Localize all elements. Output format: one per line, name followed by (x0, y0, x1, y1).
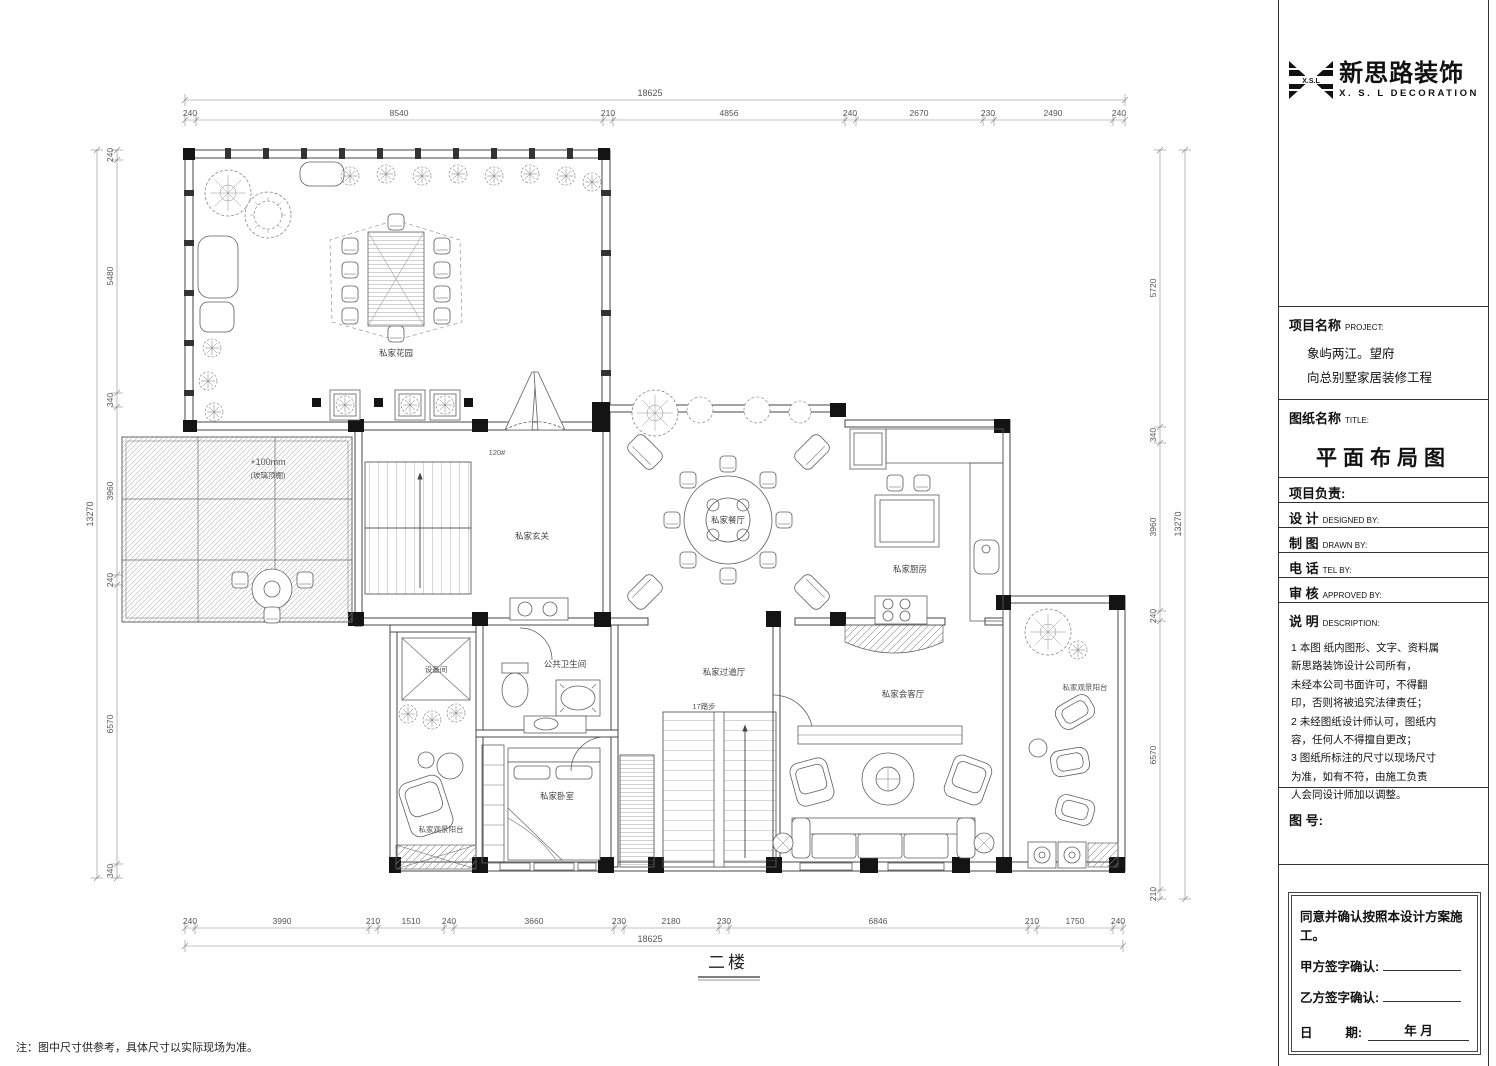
dim-bot-4: 240 (442, 916, 456, 926)
bottom-note: 注：图中尺寸供参考，具体尺寸以实际现场为准。 (16, 1040, 258, 1054)
dim-bottom-overall: 18625 (637, 934, 662, 944)
tel-row: 电 话TEL BY: (1279, 553, 1488, 578)
dim-chain-bottom (182, 922, 1126, 934)
bedroom-area: 私家卧室 (482, 737, 605, 870)
dim-chain-left (111, 147, 123, 881)
dim-bot-0: 240 (183, 916, 197, 926)
dim-bot-12: 240 (1111, 916, 1125, 926)
dim-right-5: 210 (1148, 887, 1158, 901)
dim-top-3: 4856 (720, 108, 739, 118)
dim-left-0: 240 (105, 148, 115, 162)
sheet-name-section: 图纸名称TITLE: 平面布局图 (1279, 400, 1488, 478)
dim-left-3: 3960 (105, 481, 115, 500)
description-section: 说 明DESCRIPTION: 1 本图 纸内图形、文字、资料属 新思路装饰设计… (1279, 603, 1488, 788)
drawing-sheet: 18625 240 8540 210 4856 240 2670 230 249… (0, 0, 1496, 1066)
living-area: 私家会客厅 (773, 689, 994, 870)
dim-top-8: 240 (1112, 108, 1126, 118)
dim-left-4: 240 (105, 573, 115, 587)
project-label: 项目名称 (1289, 318, 1341, 333)
dim-bot-6: 230 (612, 916, 626, 926)
dim-top-4: 240 (843, 108, 857, 118)
floor-title: 二楼 (708, 953, 748, 972)
party-b-label: 乙方签字确认: (1300, 991, 1379, 1005)
dim-left-1: 5480 (105, 266, 115, 285)
figure-number-section: 图 号: (1279, 788, 1488, 865)
signature-section: 同意并确认按照本设计方案施工。 甲方签字确认: 乙方签字确认: 日期: 年 月 (1279, 865, 1488, 1064)
svg-text:X.S.L: X.S.L (1302, 78, 1320, 85)
bathroom-label: 公共卫生间 (544, 659, 587, 669)
floor-plan-drawing: 18625 240 8540 210 4856 240 2670 230 249… (0, 0, 1278, 1066)
stair-mark-label: 120# (489, 448, 507, 457)
approved-by-row: 审 核APPROVED BY: (1279, 578, 1488, 603)
dim-bot-8: 230 (717, 916, 731, 926)
balcony-left-label: 私家观景阳台 (419, 824, 464, 834)
company-logo-section: X.S.L 新思路装饰 X. S. L DECORATION (1279, 0, 1488, 307)
dim-right-0: 5720 (1148, 278, 1158, 297)
party-b-signature-line[interactable] (1383, 990, 1461, 1002)
project-line1: 象屿两江。望府 (1307, 343, 1478, 367)
dim-left-overall: 13270 (85, 501, 95, 526)
dim-top-overall: 18625 (637, 88, 662, 98)
foyer-label: 私家玄关 (515, 531, 550, 541)
xsl-bowtie-logo-icon: X.S.L (1288, 60, 1334, 100)
dim-right-overall: 13270 (1173, 511, 1183, 536)
dining-label: 私家餐厅 (711, 515, 746, 525)
leader-row: 项目负责: (1279, 478, 1488, 503)
dim-right-3: 240 (1148, 609, 1158, 623)
dim-bot-7: 2180 (662, 916, 681, 926)
brand-name-en: X. S. L DECORATION (1339, 88, 1479, 99)
date-row: 日期: 年 月 (1300, 1020, 1469, 1041)
dim-top-1: 8540 (390, 108, 409, 118)
stair-steps-label: 17踏步 (692, 701, 716, 711)
description-notes: 1 本图 纸内图形、文字、资料属 新思路装饰设计公司所有， 未经本公司书面许可，… (1289, 639, 1478, 804)
title-block: X.S.L 新思路装饰 X. S. L DECORATION 项目名称PROJE… (1278, 0, 1489, 1066)
hallway-label: 私家过道厅 (703, 667, 746, 677)
balcony-right-area: 私家观景阳台 (1025, 609, 1118, 868)
living-label: 私家会客厅 (882, 689, 925, 699)
dim-top-5: 2670 (910, 108, 929, 118)
dim-bot-9: 6846 (869, 916, 888, 926)
figure-no-label: 图 号: (1289, 810, 1323, 829)
date-line[interactable]: 年 月 (1368, 1020, 1469, 1041)
dim-bot-5: 3660 (525, 916, 544, 926)
signature-box: 同意并确认按照本设计方案施工。 甲方签字确认: 乙方签字确认: 日期: 年 月 (1291, 895, 1478, 1052)
dim-right-2: 3960 (1148, 517, 1158, 536)
drawn-by-row: 制 图DRAWN BY: (1279, 528, 1488, 553)
agreement-text: 同意并确认按照本设计方案施工。 (1300, 906, 1469, 944)
sheet-label: 图纸名称 (1289, 411, 1341, 426)
dim-bot-2: 210 (366, 916, 380, 926)
garden-label: 私家花园 (379, 348, 413, 358)
dim-top-0: 240 (183, 108, 197, 118)
bathroom-area: 公共卫生间 (502, 628, 600, 733)
project-line2: 向总别墅家居装修工程 (1307, 367, 1478, 391)
brand-name-cn: 新思路装饰 (1339, 61, 1479, 86)
dim-left-6: 340 (105, 864, 115, 878)
dim-top-7: 2490 (1044, 108, 1063, 118)
party-a-signature-line[interactable] (1383, 959, 1461, 971)
project-name-section: 项目名称PROJECT: 象屿两江。望府 向总别墅家居装修工程 (1279, 307, 1488, 400)
dim-right-1: 340 (1148, 428, 1158, 442)
equipment-label: 设备间 (425, 664, 448, 674)
dim-bot-11: 1750 (1066, 916, 1085, 926)
dim-bot-1: 3990 (273, 916, 292, 926)
balcony-left-area: 设备间 私家观景阳台 (396, 638, 476, 869)
dim-left-2: 340 (105, 393, 115, 407)
dim-top-2: 210 (601, 108, 615, 118)
kitchen-label: 私家厨房 (893, 564, 927, 574)
balcony-right-label: 私家观景阳台 (1063, 682, 1108, 692)
glass-canopy: +100mm (玻璃顶棚) (122, 437, 352, 623)
dim-right-4: 6570 (1148, 745, 1158, 764)
dim-left-5: 6570 (105, 714, 115, 733)
canopy-elevation: +100mm (250, 457, 285, 467)
bedroom-label: 私家卧室 (540, 791, 575, 801)
dim-bot-3: 1510 (402, 916, 421, 926)
dining-area: 私家餐厅 (625, 390, 832, 612)
dim-top-6: 230 (981, 108, 995, 118)
dim-bot-10: 210 (1025, 916, 1039, 926)
party-a-label: 甲方签字确认: (1300, 960, 1379, 974)
sheet-title: 平面布局图 (1289, 442, 1478, 472)
canopy-note: (玻璃顶棚) (251, 470, 286, 480)
designed-by-row: 设 计DESIGNED BY: (1279, 503, 1488, 528)
